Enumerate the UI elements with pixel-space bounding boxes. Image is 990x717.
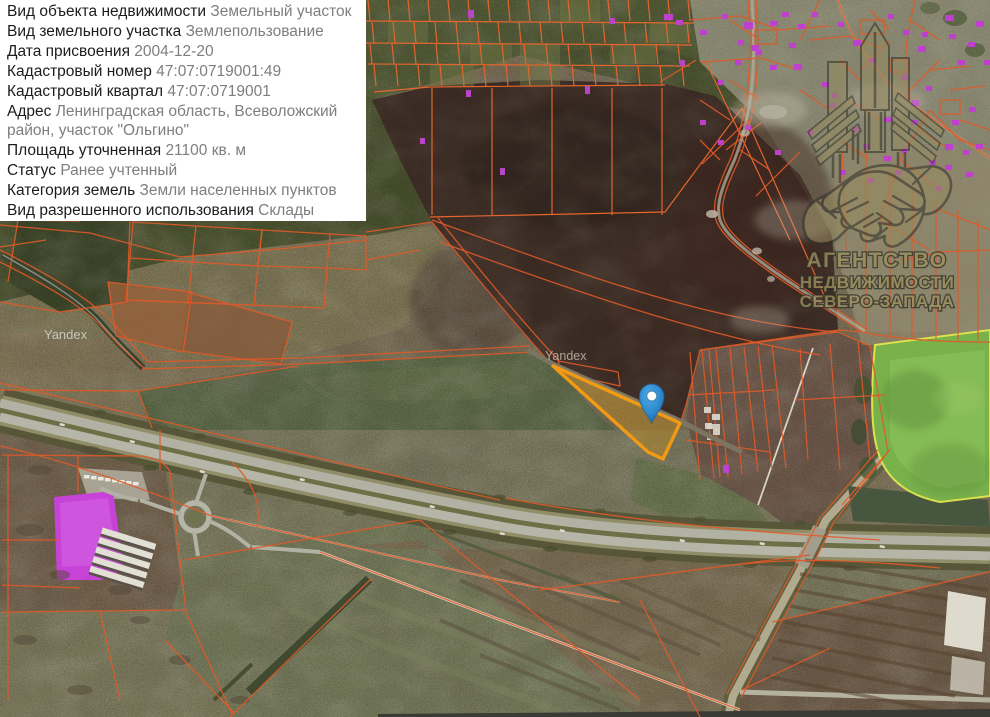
svg-text:Yandex: Yandex <box>44 327 88 342</box>
svg-text:СЕВЕРО-ЗАПАДА: СЕВЕРО-ЗАПАДА <box>800 292 955 311</box>
svg-text:НЕДВИЖИМОСТИ: НЕДВИЖИМОСТИ <box>800 273 954 292</box>
svg-text:Yandex: Yandex <box>545 349 587 363</box>
svg-text:АГЕНТСТВО: АГЕНТСТВО <box>806 249 947 272</box>
